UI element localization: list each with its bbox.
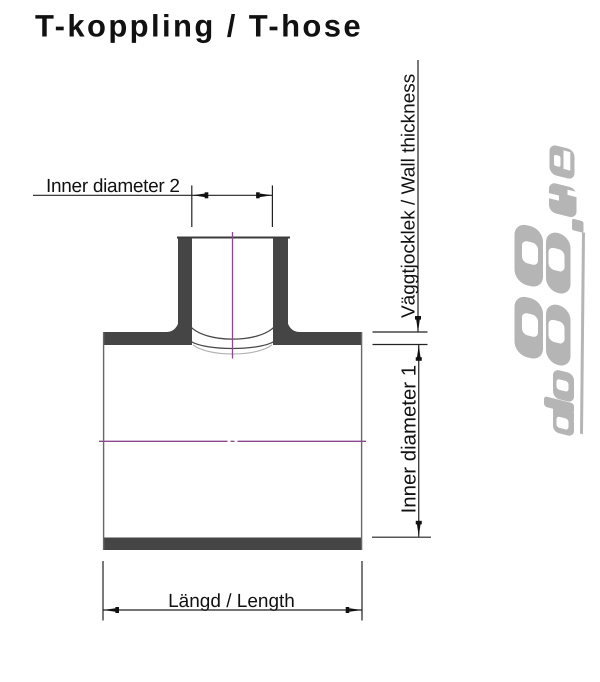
svg-text:Inner diameter 2: Inner diameter 2 — [46, 176, 180, 197]
svg-text:Väggtjocklek / Wall thickness: Väggtjocklek / Wall thickness — [399, 74, 420, 318]
svg-text:T-koppling / T-hose: T-koppling / T-hose — [35, 8, 363, 43]
svg-text:Inner diameter 1: Inner diameter 1 — [399, 365, 421, 513]
svg-text:Längd / Length: Längd / Length — [168, 591, 295, 612]
